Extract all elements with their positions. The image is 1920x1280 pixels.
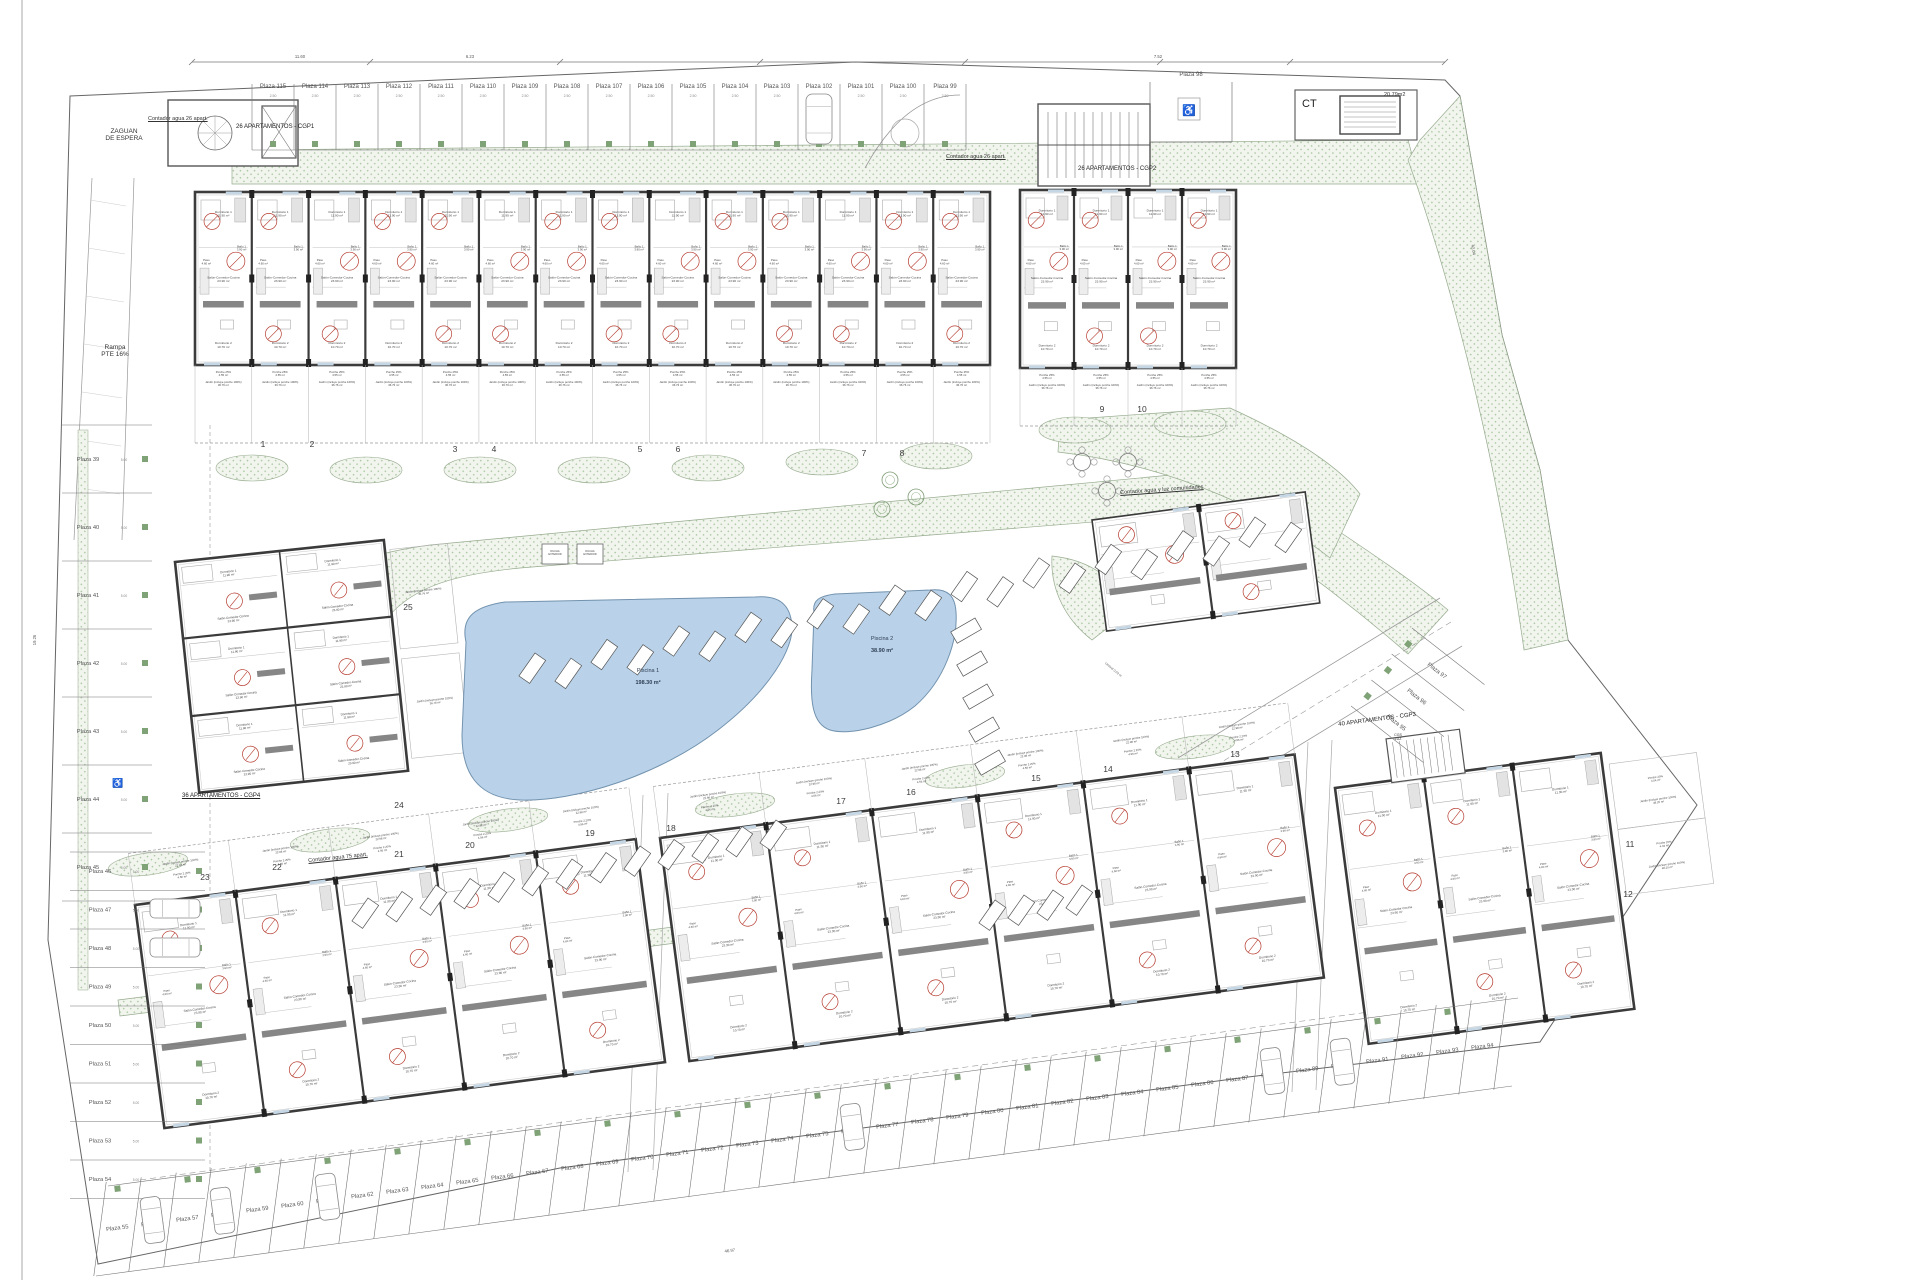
garden-label: Jardín (incluye porche 100%)36.76 m² <box>1137 383 1173 390</box>
dim-text: 5.00 <box>121 662 128 666</box>
dim-text: 2.50 <box>858 94 865 98</box>
plaza-label: Plaza 104 <box>722 84 749 90</box>
garden-label: Jardín (incluye porche 100%)36.76 m² <box>546 380 582 387</box>
plaza-label: Plaza 41 <box>77 593 100 599</box>
dim-text: 2.50 <box>774 94 781 98</box>
pool2-area: 38.90 m² <box>846 648 918 654</box>
porch-label: Porche 2.20%4.56 m² <box>1018 761 1037 771</box>
garden-number: 7 <box>862 448 867 458</box>
plaza-label: Plaza 59 <box>246 1206 269 1215</box>
plaza-label: Plaza 106 <box>638 84 665 90</box>
plaza-label: Plaza 80 <box>981 1108 1004 1117</box>
room-label: Baño 13.90 m² <box>748 244 758 251</box>
porch-label: Porche 25%4.55 m² <box>1147 373 1163 380</box>
dim-text: 5.00 <box>133 1178 140 1182</box>
room-label: Baño 13.90 m² <box>634 244 644 251</box>
dim-text: 2.50 <box>354 94 361 98</box>
core-east <box>1038 104 1150 186</box>
room-label: Baño 13.90 m² <box>464 244 474 251</box>
porch-label: Porche 2.20%4.56 m² <box>473 831 492 841</box>
dim-text: 2.50 <box>606 94 613 98</box>
label-cgp2: 26 APARTAMENTOS - CGP2 <box>1078 166 1156 173</box>
porch-label: Porche 25%4.55 m² <box>556 370 572 377</box>
cgp3-gardens: Porche 20%4.04 m²Jardín (incluye porche … <box>1609 753 1713 895</box>
plaza-label: Plaza 112 <box>386 84 413 90</box>
plaza-label: Plaza 108 <box>554 84 581 90</box>
pool1-area: 198.30 m² <box>612 680 684 686</box>
porch-label: Porche 25%4.55 m² <box>216 370 232 377</box>
wheelchair-icon: ♿ <box>112 777 123 788</box>
dim-text: 6.23 <box>466 54 475 59</box>
core-west <box>168 100 298 166</box>
plaza-label: Plaza 93 <box>1436 1047 1459 1056</box>
porch-label: Porche 2.20%4.56 m² <box>1124 747 1143 757</box>
plaza-label: Plaza 99 <box>933 84 957 90</box>
label-contador26b: Contador agua 26 apart. <box>946 154 1006 160</box>
plaza-label: Plaza 64 <box>421 1182 445 1191</box>
porch-label: Porche 25%4.55 m² <box>613 370 629 377</box>
plaza-label: Plaza 78 <box>911 1117 934 1126</box>
porch-label: Porche 25%4.55 m² <box>500 370 516 377</box>
room-label: Baño 13.90 m² <box>407 244 417 251</box>
dim-text: 5.00 <box>133 1101 140 1105</box>
garden-label: Jardín (incluye porche 100%)22.98 m² <box>562 805 599 817</box>
plaza-label: Plaza 82 <box>1051 1099 1074 1108</box>
plaza-label: Plaza 81 <box>1016 1103 1039 1112</box>
plaza-label: Plaza 44 <box>77 797 100 803</box>
plaza-label: Plaza 79 <box>946 1113 969 1122</box>
plaza-label: Plaza 84 <box>1121 1089 1145 1098</box>
dim-text: 2.50 <box>480 94 487 98</box>
porch-label: Porche 20%4.04 m² <box>1647 774 1664 783</box>
plaza-label: Plaza 39 <box>77 457 100 463</box>
garden-number: 15 <box>1031 773 1041 783</box>
garden-label: Jardín (incluye porche 100%)22.98 m² <box>262 844 299 856</box>
plaza-label: Plaza 43 <box>77 729 100 735</box>
dim-text: 5.00 <box>133 947 140 951</box>
wheelchair-icon: ♿ <box>1182 104 1196 117</box>
room-label: Baño 13.90 m² <box>350 244 360 251</box>
garden-number: 11 <box>1626 839 1635 849</box>
garden-label: Jardín (incluye porche 100%)36.76 m² <box>887 380 923 387</box>
dim-text: 5.00 <box>121 866 128 870</box>
porch-label: Porche 2.20%4.56 m² <box>806 789 825 799</box>
room-label: Baño 13.90 m² <box>918 244 928 251</box>
label-cgs-luz: CGS LUZ <box>1386 733 1410 741</box>
plaza-label: Plaza 113 <box>344 84 371 90</box>
garden-label: Jardín (incluye porche 100%)36.76 m² <box>376 380 412 387</box>
dim-text: 2.50 <box>942 94 949 98</box>
plaza-label: Plaza 83 <box>1086 1094 1109 1103</box>
room-label: Baño 13.90 m² <box>1222 244 1232 251</box>
dim-text: 2.50 <box>396 94 403 98</box>
plaza-label: Plaza 51 <box>89 1062 112 1068</box>
label-piscina1: Piscina 1 198.30 m² <box>612 662 684 693</box>
garden-label: Jardín (incluye porche 100%)36.76 m² <box>603 380 639 387</box>
plaza-label: Plaza 86 <box>1191 1080 1214 1089</box>
plaza-label: Plaza 101 <box>848 84 875 90</box>
porch-label: Porche 2.20%4.56 m² <box>173 870 192 880</box>
room-label: Baño 13.90 m² <box>1060 244 1070 251</box>
plaza-label: Plaza 69 <box>596 1159 619 1168</box>
label-ct: CT <box>1302 98 1317 110</box>
garden-number: 3 <box>453 444 458 454</box>
garden-label: Jardín (incluye porche 100%)22.98 m² <box>796 776 833 788</box>
dim-text: 2.50 <box>270 94 277 98</box>
porch-label: Porche 2.20%4.56 m² <box>573 818 592 828</box>
dim-text: 19.26 <box>32 634 37 645</box>
plaza-label: Plaza 115 <box>260 84 287 90</box>
dim-text: 5.00 <box>133 1063 140 1067</box>
garden-label: Jardín (incluye porche 100%)36.76 m² <box>1191 383 1227 390</box>
porch-label: Porche 25%4.55 m² <box>840 370 856 377</box>
room-label: Baño 13.90 m² <box>322 949 332 957</box>
site-plan-drawing: Dormitorio 111.90 m²Salón-Comedor-Cocina… <box>0 0 1920 1280</box>
dim-text: 5.00 <box>133 1024 140 1028</box>
garden-number: 21 <box>394 849 404 859</box>
garden-number: 24 <box>394 800 404 810</box>
plaza-label: Plaza 53 <box>89 1139 112 1145</box>
room-label: Baño 13.90 m² <box>622 909 632 917</box>
garden-number: 23 <box>200 872 210 882</box>
garden-label: Jardín (incluye porche 100%)48.20 m² <box>1640 795 1677 807</box>
plaza-label: Plaza 66 <box>491 1173 514 1182</box>
building-cgp3: Dormitorio 111.90 m²Salón-Comedor-Cocina… <box>1335 751 1635 1046</box>
handicap-stall: ♿Plaza 98 <box>1150 72 1232 142</box>
dim-text: 5.00 <box>121 730 128 734</box>
garden-label: Jardín (incluye porche 100%)22.98 m² <box>1219 720 1256 732</box>
porch-label: Porche 25%4.55 m² <box>1039 373 1055 380</box>
dim-text: 5.00 <box>133 909 140 913</box>
garden-number: 10 <box>1137 404 1147 414</box>
porch-label: Porche 25%4.55 m² <box>273 370 289 377</box>
plaza-label: Plaza 68 <box>561 1164 584 1173</box>
plaza-label: Plaza 109 <box>512 84 539 90</box>
dim-text: 2.50 <box>522 94 529 98</box>
plaza-label: Plaza 63 <box>386 1187 409 1196</box>
room-label: Baño 13.90 m² <box>1168 244 1178 251</box>
dim-text: 5.00 <box>121 458 128 462</box>
garden-label: Jardín (incluye porche 100%)36.76 m² <box>432 380 468 387</box>
dim-text: 5.00 <box>121 594 128 598</box>
label-piscina2: Piscina 2 38.90 m² <box>846 630 918 661</box>
dim-text: 2.50 <box>690 94 697 98</box>
garden-number: 1 <box>261 439 266 449</box>
garden-label: Jardín (incluye porche 100%)22.98 m² <box>901 762 938 774</box>
garden-number: 4 <box>492 444 497 454</box>
room-label: Baño 13.90 m² <box>422 936 432 944</box>
dim-text: 2.50 <box>312 94 319 98</box>
plaza-label: Plaza 97 <box>1426 662 1447 681</box>
plaza-label: Plaza 70 <box>631 1154 654 1163</box>
plaza-label: Plaza 47 <box>89 908 112 914</box>
room-label: Baño 13.90 m² <box>578 244 588 251</box>
garden-number: 25 <box>403 602 413 612</box>
plaza-label: Plaza 67 <box>526 1168 549 1177</box>
porch-label: Porche 25%4.55 m² <box>954 370 970 377</box>
garden-number: 13 <box>1230 749 1240 759</box>
pool2-name: Piscina 2 <box>846 636 918 642</box>
garden-number: 12 <box>1623 889 1633 899</box>
dim-text: 46.97 <box>724 1247 736 1253</box>
plaza-label: Plaza 77 <box>876 1122 899 1131</box>
porch-label: Porche 20%4.04 m² <box>1656 839 1673 848</box>
garden-number: 8 <box>900 448 905 458</box>
garden-label: Jardín (incluye porche 100%)22.98 m² <box>1113 734 1150 746</box>
room-label: Baño 13.90 m² <box>521 244 531 251</box>
room-label: Baño 13.90 m² <box>1502 845 1512 853</box>
room-label: Baño 13.90 m² <box>751 894 761 902</box>
porch-label: Porche 2.20%4.56 m² <box>373 844 392 854</box>
garden-label: Jardín (incluye porche 100%)36.76 m² <box>773 380 809 387</box>
plaza-label: Plaza 60 <box>281 1201 304 1210</box>
pool1-name: Piscina 1 <box>612 668 684 674</box>
garden-number: 14 <box>1103 764 1113 774</box>
garden-label: Jardín (incluye porche 100%)36.76 m² <box>716 380 752 387</box>
porch-label: Porche 25%4.55 m² <box>897 370 913 377</box>
dim-text: 5.00 <box>133 870 140 874</box>
label-cgp4: 36 APARTAMENTOS - CGP4 <box>182 793 260 800</box>
plaza-label: Plaza 105 <box>680 84 707 90</box>
room-label: Baño 13.90 m² <box>1114 244 1124 251</box>
garden-number: 9 <box>1100 404 1105 414</box>
garden-label: Jardín (incluye porche 100%)36.76 m² <box>262 380 298 387</box>
porch-label: Porche 25%4.55 m² <box>784 370 800 377</box>
plaza-label: Plaza 49 <box>89 985 112 991</box>
plaza-label: Plaza 94 <box>1471 1043 1495 1052</box>
garden-number: 16 <box>906 787 916 797</box>
site-plan-sheet: Dormitorio 111.90 m²Salón-Comedor-Cocina… <box>0 0 1920 1280</box>
dim-text: 5.00 <box>133 1140 140 1144</box>
garden-label: Jardín (incluye porche 100%)36.76 m² <box>1029 383 1065 390</box>
plaza-label: Plaza 72 <box>701 1145 724 1154</box>
plaza-label: Plaza 52 <box>89 1100 112 1106</box>
dim-text: 7.52 <box>1154 54 1163 59</box>
plaza-label: Plaza 103 <box>764 84 791 90</box>
room-label: Baño 13.90 m² <box>805 244 815 251</box>
plaza-label: Plaza 98 <box>1179 72 1203 78</box>
garden-number: 17 <box>836 796 846 806</box>
garden-number: 19 <box>585 828 595 838</box>
plaza-label: Plaza 50 <box>89 1023 112 1029</box>
room-label: Baño 13.90 m² <box>963 867 973 875</box>
loungers-right-column <box>951 618 1006 775</box>
garden-number: 18 <box>666 823 676 833</box>
garden-number: 2 <box>310 439 315 449</box>
dim-text: 2.50 <box>648 94 655 98</box>
plaza-label: Plaza 107 <box>596 84 623 90</box>
plaza-label: Plaza 42 <box>77 661 100 667</box>
garden-label: Jardín (incluye porche 100%)36.76 m² <box>319 380 355 387</box>
dim-text: 5.00 <box>121 798 128 802</box>
building-cgp1: Dormitorio 111.90 m²Salón-Comedor-Cocina… <box>195 190 990 443</box>
plaza-label: Plaza 92 <box>1401 1052 1424 1061</box>
dim-text: 5.00 <box>121 526 128 530</box>
label-contador26a: Contador agua 26 apart. <box>148 116 208 122</box>
plaza-label: Plaza 55 <box>106 1224 129 1233</box>
dim-text: 5.00 <box>133 986 140 990</box>
label-ct-area: 20.79m2 <box>1384 92 1405 98</box>
dim-text: 11.60 <box>295 54 306 59</box>
porch-label: Porche 25%4.55 m² <box>1093 373 1109 380</box>
label-cgp1: 26 APARTAMENTOS - CGP1 <box>236 124 314 131</box>
porch-label: Porche 25%4.55 m² <box>443 370 459 377</box>
plaza-label: Plaza 96 <box>1405 688 1426 707</box>
plaza-label: Plaza 40 <box>77 525 100 531</box>
porch-label: Porche 25%4.55 m² <box>670 370 686 377</box>
plaza-label: Plaza 75 <box>806 1131 829 1140</box>
plaza-label: Plaza 85 <box>1156 1085 1179 1094</box>
porch-label: Porche 25%4.55 m² <box>329 370 345 377</box>
room-label: Baño 13.90 m² <box>861 244 871 251</box>
room-label: Baño 13.90 m² <box>522 922 532 930</box>
plaza-label: Plaza 111 <box>428 84 454 90</box>
plaza-label: Plaza 100 <box>890 84 917 90</box>
building-cgp2: Dormitorio 111.90 m²Salón-Comedor-Cocina… <box>1020 188 1236 426</box>
dim-text: 2.50 <box>900 94 907 98</box>
garden-label: Jardín (incluye porche 100%)36.76 m² <box>830 380 866 387</box>
garden-label: Jardín (incluye porche 100%)36.76 m² <box>489 380 525 387</box>
garden-number: 6 <box>676 444 681 454</box>
room-label: Baño 13.90 m² <box>1068 853 1078 861</box>
plaza-label: Plaza 73 <box>736 1140 759 1149</box>
plaza-label: Plaza 91 <box>1366 1057 1389 1066</box>
garden-number: 5 <box>638 444 643 454</box>
garden-number: 20 <box>465 840 475 850</box>
plaza-label: Plaza 102 <box>806 84 833 90</box>
room-label: Baño 13.90 m² <box>221 962 231 970</box>
garden-number: 22 <box>272 862 282 872</box>
plaza-label: Plaza 48 <box>89 946 112 952</box>
plaza-label: Plaza 87 <box>1226 1075 1249 1084</box>
room-label: Baño 13.90 m² <box>1590 833 1600 841</box>
garden-label: Jardín (incluye porche 100%)36.76 m² <box>417 696 454 707</box>
room-label: Baño 13.90 m² <box>1413 857 1423 865</box>
room-label: Baño 13.90 m² <box>1174 839 1184 847</box>
plaza-label: Plaza 89 <box>1296 1066 1319 1075</box>
garden-label: Jardín (incluye porche 100%)22.98 m² <box>1007 748 1044 760</box>
plaza-label: Plaza 46 <box>89 869 112 875</box>
porch-label: Porche 25%4.55 m² <box>1201 373 1217 380</box>
dim-text: 2.50 <box>438 94 445 98</box>
plaza-label: Plaza 114 <box>302 84 329 90</box>
room-label: Baño 13.90 m² <box>294 244 304 251</box>
dim-text: 2.50 <box>732 94 739 98</box>
plaza-label: Plaza 74 <box>771 1136 795 1145</box>
plaza-label: Plaza 110 <box>470 84 497 90</box>
label-rampa: Rampa PTE 16% <box>80 344 150 359</box>
porch-label: Porche 25%4.55 m² <box>727 370 743 377</box>
plaza-label: Plaza 54 <box>89 1177 112 1183</box>
room-label: Baño 13.90 m² <box>975 244 985 251</box>
room-label: Baño 13.90 m² <box>1280 825 1290 833</box>
parking-row-top: Plaza 1152.50Plaza 1142.50Plaza 1132.50P… <box>252 84 966 150</box>
garden-label: Jardín (incluye porche 100%)36.76 m² <box>943 380 979 387</box>
pools <box>462 590 956 800</box>
plaza-label: Plaza 71 <box>666 1150 689 1159</box>
room-label: Baño 13.90 m² <box>237 244 247 251</box>
label-zaguan: ZAGUAN DE ESPERA <box>84 128 164 143</box>
garden-label: Jardín (incluye porche 100%)36.76 m² <box>205 380 241 387</box>
plaza-label: Plaza 57 <box>176 1215 199 1224</box>
room-label: Baño 13.90 m² <box>691 244 701 251</box>
room-label: Baño 13.90 m² <box>857 880 867 888</box>
porch-label: Porche 25%4.55 m² <box>386 370 402 377</box>
garden-label: Jardín (incluye porche 100%)36.76 m² <box>1083 383 1119 390</box>
plaza-label: Plaza 62 <box>351 1192 374 1201</box>
dim-text: 2.50 <box>564 94 571 98</box>
garden-label: Jardín (incluye porche 100%)36.76 m² <box>659 380 695 387</box>
building-bA: Dormitorio 111.90 m²Salón-Comedor-Cocina… <box>128 788 665 1131</box>
